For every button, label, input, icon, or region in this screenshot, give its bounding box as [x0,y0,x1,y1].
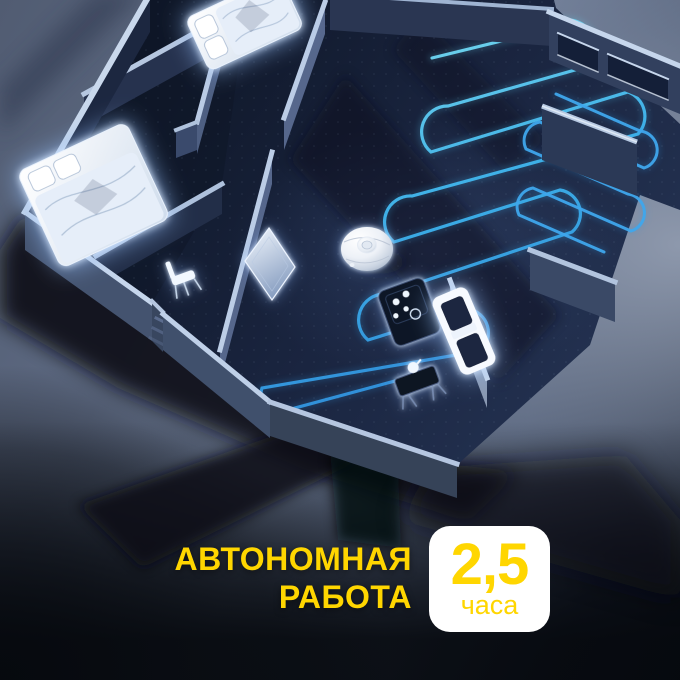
robot-sensor [350,263,355,267]
duration-badge: 2,5 часа [429,526,550,632]
duration-value: 2,5 [429,534,550,596]
duration-unit: часа [429,592,550,618]
headline-line1: АВТОНОМНАЯ [174,540,412,578]
robot-lidar-cap [362,241,372,249]
headline-line2: РАБОТА [174,578,412,616]
headline: АВТОНОМНАЯ РАБОТА [174,540,412,616]
ad-image: АВТОНОМНАЯ РАБОТА 2,5 часа [0,0,680,680]
